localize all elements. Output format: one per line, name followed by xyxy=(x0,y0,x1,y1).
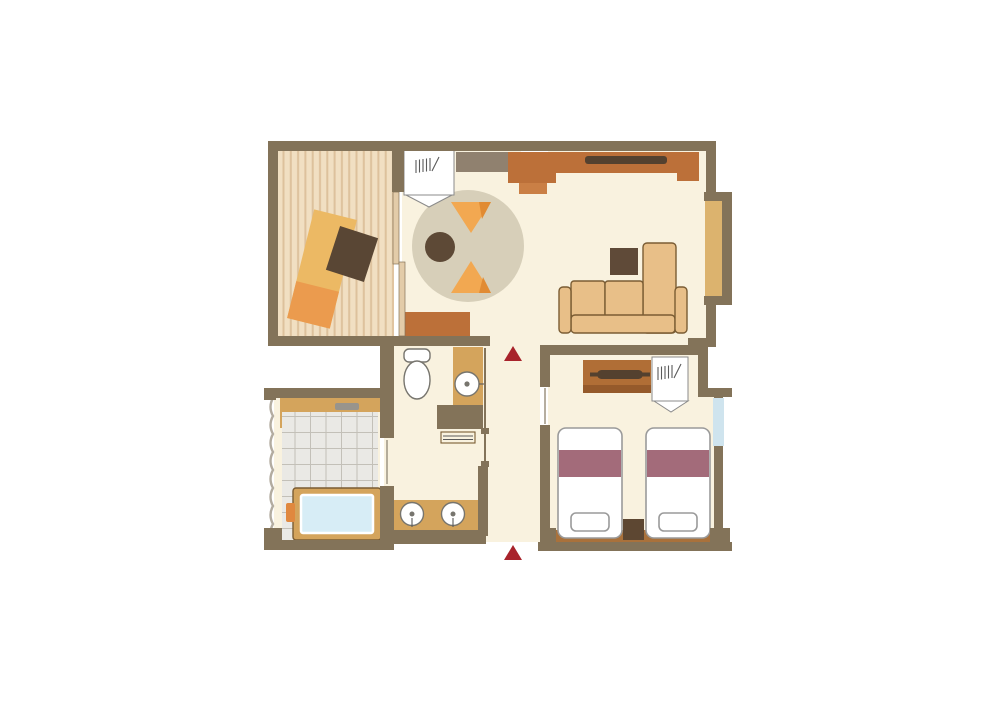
twin-bed-left xyxy=(558,428,622,538)
dresser-tv-board xyxy=(583,360,651,393)
shower-bar xyxy=(335,403,359,410)
entrance-marker-bottom xyxy=(504,545,522,560)
side-table xyxy=(610,248,638,275)
washroom xyxy=(386,500,480,530)
bed-runner-right xyxy=(647,450,709,477)
bath-faucet xyxy=(286,503,295,522)
round-table xyxy=(425,232,455,262)
shelf xyxy=(456,152,508,172)
bathtub xyxy=(286,488,381,540)
pillow-left xyxy=(571,513,609,531)
bathroom xyxy=(265,397,381,543)
low-cabinet xyxy=(402,312,470,340)
wall-tv xyxy=(585,156,667,164)
hallway-floor xyxy=(484,346,540,542)
twin-bed-right xyxy=(646,428,710,538)
nightstand xyxy=(623,519,644,540)
hand-basin-cabinet xyxy=(453,347,484,405)
open-edge-scallop xyxy=(265,397,274,543)
tv xyxy=(597,370,643,379)
tatami-sliding-panel-1 xyxy=(393,192,399,264)
bay-window-bench xyxy=(705,199,723,297)
bed-runner-left xyxy=(559,450,621,477)
bench xyxy=(441,432,475,443)
toilet xyxy=(404,349,430,399)
hall-wall-chunk xyxy=(437,405,483,429)
floor-plan-page xyxy=(0,0,1000,707)
floor-plan-drawing xyxy=(0,0,1000,707)
closet-hangers xyxy=(652,357,688,412)
pillow-right xyxy=(659,513,697,531)
tatami-sliding-panel-2 xyxy=(399,262,405,336)
bedroom-window xyxy=(713,398,724,446)
